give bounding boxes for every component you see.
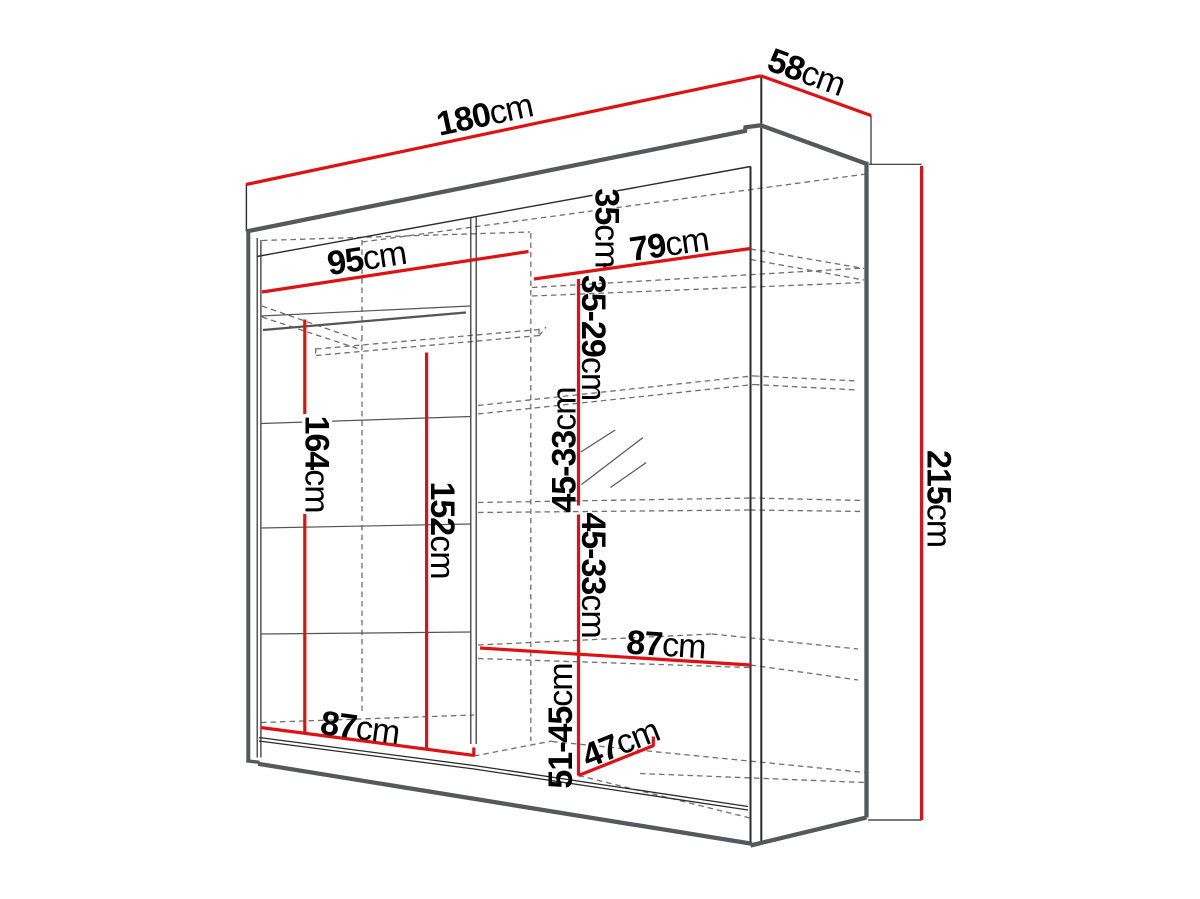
svg-text:51-45cm: 51-45cm [542,663,580,788]
svg-text:152cm: 152cm [423,481,461,578]
svg-text:164cm: 164cm [297,415,335,512]
svg-text:35cm: 35cm [587,188,625,267]
svg-text:87cm: 87cm [625,624,706,667]
svg-text:215cm: 215cm [919,450,957,547]
svg-text:45-33cm: 45-33cm [546,387,584,512]
svg-text:35-29cm: 35-29cm [574,275,612,400]
svg-text:45-33cm: 45-33cm [574,512,612,637]
